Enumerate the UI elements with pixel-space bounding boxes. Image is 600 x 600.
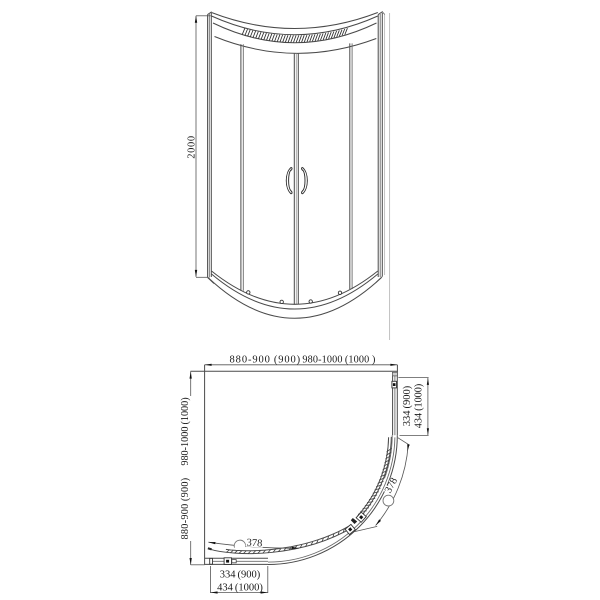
svg-text:980-1000 (1000): 980-1000 (1000) — [180, 397, 191, 465]
svg-text:880-900 (900): 880-900 (900) — [230, 354, 302, 365]
svg-text:334 (900): 334 (900) — [402, 385, 413, 426]
svg-text:880-900 (900): 880-900 (900) — [180, 478, 191, 540]
svg-text:2000: 2000 — [186, 135, 197, 158]
svg-text:980-1000 (1000 ): 980-1000 (1000 ) — [302, 354, 375, 365]
svg-text:378: 378 — [246, 538, 262, 550]
svg-text:434 (1000): 434 (1000) — [413, 384, 424, 428]
svg-text:434 (1000): 434 (1000) — [217, 583, 263, 594]
svg-text:334 (900): 334 (900) — [220, 570, 261, 581]
